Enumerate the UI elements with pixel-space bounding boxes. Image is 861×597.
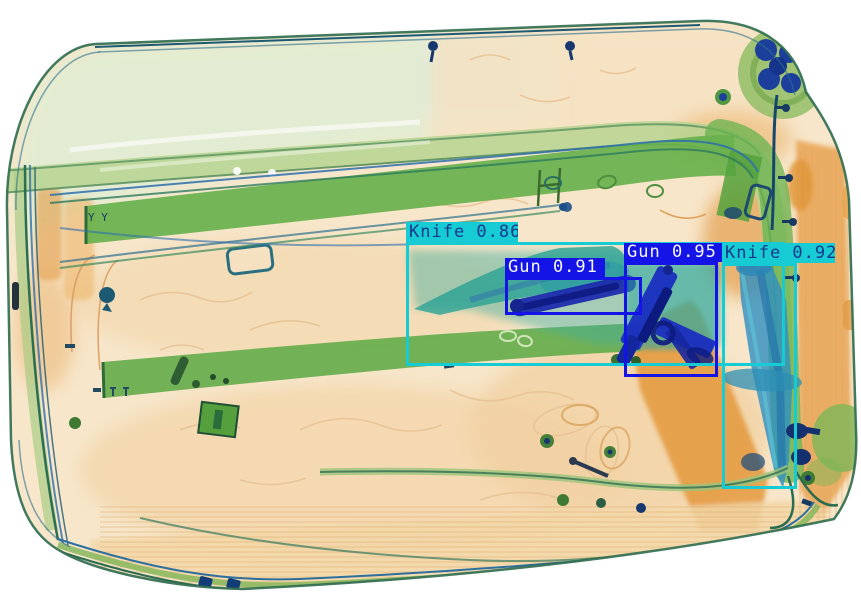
detection-label-knife-0.92: Knife 0.92 [722,243,835,263]
detection-box-knife-0.92 [722,263,797,489]
detection-label-gun-0.91: Gun 0.91 [505,258,605,277]
detection-overlay: Knife 0.86Gun 0.91Gun 0.95Knife 0.92 [0,0,861,597]
detection-label-gun-0.95: Gun 0.95 [624,243,723,262]
xray-scan-image: Y Y [0,0,861,597]
detection-box-gun-0.95 [624,262,718,377]
detection-label-knife-0.86: Knife 0.86 [406,222,518,242]
detection-box-gun-0.91 [505,277,642,315]
